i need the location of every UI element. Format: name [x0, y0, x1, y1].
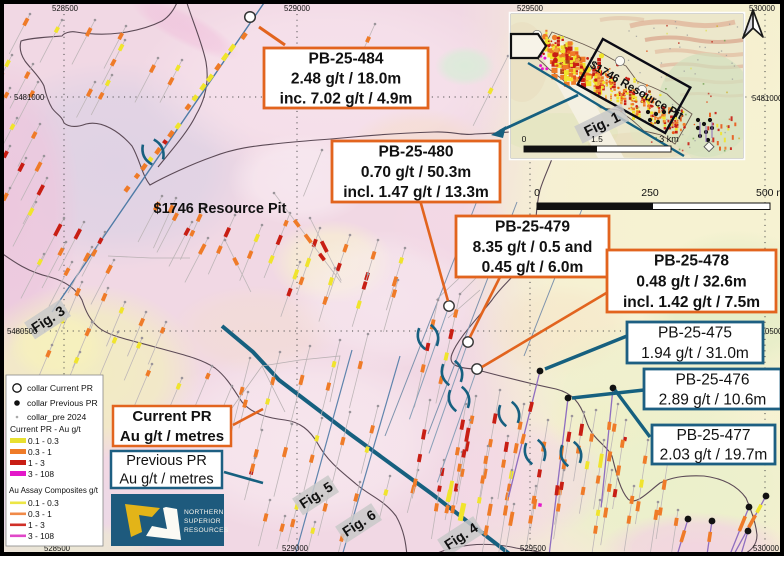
svg-text:529500: 529500 [517, 4, 544, 13]
svg-text:2.89 g/t / 10.6m: 2.89 g/t / 10.6m [659, 391, 767, 408]
svg-text:1.94 g/t / 31.0m: 1.94 g/t / 31.0m [641, 345, 749, 362]
svg-text:0.48 g/t / 32.6m: 0.48 g/t / 32.6m [636, 273, 746, 290]
svg-text:PB-25-479: PB-25-479 [495, 218, 570, 235]
svg-text:0.3 - 1: 0.3 - 1 [28, 509, 52, 519]
svg-text:0.45 g/t / 6.0m: 0.45 g/t / 6.0m [482, 259, 584, 276]
svg-text:5480500: 5480500 [7, 327, 38, 336]
svg-text:529500: 529500 [520, 544, 547, 553]
svg-text:SUPERIOR: SUPERIOR [184, 518, 221, 525]
svg-text:528500: 528500 [52, 4, 79, 13]
svg-text:PB-25-475: PB-25-475 [658, 325, 732, 342]
svg-text:1.5: 1.5 [591, 134, 603, 144]
svg-text:NORTHERN: NORTHERN [184, 509, 224, 516]
svg-text:inc. 7.02 g/t / 4.9m: inc. 7.02 g/t / 4.9m [280, 90, 413, 107]
svg-text:PB-25-484: PB-25-484 [309, 50, 384, 67]
svg-text:1 - 3: 1 - 3 [28, 458, 45, 468]
svg-text:530000: 530000 [753, 544, 780, 553]
svg-text:PB-25-476: PB-25-476 [675, 371, 749, 388]
svg-text:collar Previous PR: collar Previous PR [27, 398, 98, 408]
svg-text:incl. 1.47 g/t / 13.3m: incl. 1.47 g/t / 13.3m [343, 184, 489, 201]
svg-text:collar_pre 2024: collar_pre 2024 [27, 412, 86, 422]
svg-text:500 m: 500 m [756, 187, 784, 199]
svg-text:0.70 g/t / 50.3m: 0.70 g/t / 50.3m [361, 164, 471, 181]
svg-text:529000: 529000 [282, 544, 309, 553]
svg-text:2.48 g/t / 18.0m: 2.48 g/t / 18.0m [291, 70, 401, 87]
svg-text:collar Current PR: collar Current PR [27, 383, 93, 393]
svg-text:Au g/t / metres: Au g/t / metres [119, 472, 213, 488]
svg-text:2.03 g/t / 19.7m: 2.03 g/t / 19.7m [660, 447, 768, 464]
svg-text:Previous PR: Previous PR [126, 453, 207, 469]
svg-text:5481000: 5481000 [14, 93, 45, 102]
svg-text:530000: 530000 [749, 4, 776, 13]
svg-text:3 - 108: 3 - 108 [28, 469, 54, 479]
svg-text:RESOURCES: RESOURCES [184, 527, 229, 534]
svg-text:5481000: 5481000 [752, 94, 783, 103]
svg-text:0.1 - 0.3: 0.1 - 0.3 [28, 498, 59, 508]
svg-text:529000: 529000 [284, 4, 311, 13]
svg-text:PB-25-478: PB-25-478 [654, 253, 729, 270]
svg-text:Au g/t / metres: Au g/t / metres [120, 428, 224, 445]
svg-text:Au Assay Composites g/t: Au Assay Composites g/t [9, 486, 99, 495]
svg-text:3 km: 3 km [659, 134, 679, 144]
svg-text:0.1 - 0.3: 0.1 - 0.3 [28, 436, 59, 446]
svg-text:3 - 108: 3 - 108 [28, 531, 54, 541]
svg-text:incl. 1.42 g/t / 7.5m: incl. 1.42 g/t / 7.5m [623, 294, 760, 311]
svg-text:PB-25-477: PB-25-477 [676, 427, 750, 444]
svg-text:0: 0 [522, 134, 527, 144]
svg-text:Current PR - Au g/t: Current PR - Au g/t [10, 424, 81, 434]
svg-text:0: 0 [534, 187, 540, 199]
svg-text:8.35 g/t / 0.5 and: 8.35 g/t / 0.5 and [473, 239, 593, 256]
svg-text:PB-25-480: PB-25-480 [379, 143, 454, 160]
svg-text:0.3 - 1: 0.3 - 1 [28, 447, 52, 457]
svg-text:Current PR: Current PR [132, 408, 211, 425]
svg-text:$1746 Resource Pit: $1746 Resource Pit [154, 201, 287, 217]
svg-text:250: 250 [641, 187, 659, 199]
svg-text:1 - 3: 1 - 3 [28, 520, 45, 530]
